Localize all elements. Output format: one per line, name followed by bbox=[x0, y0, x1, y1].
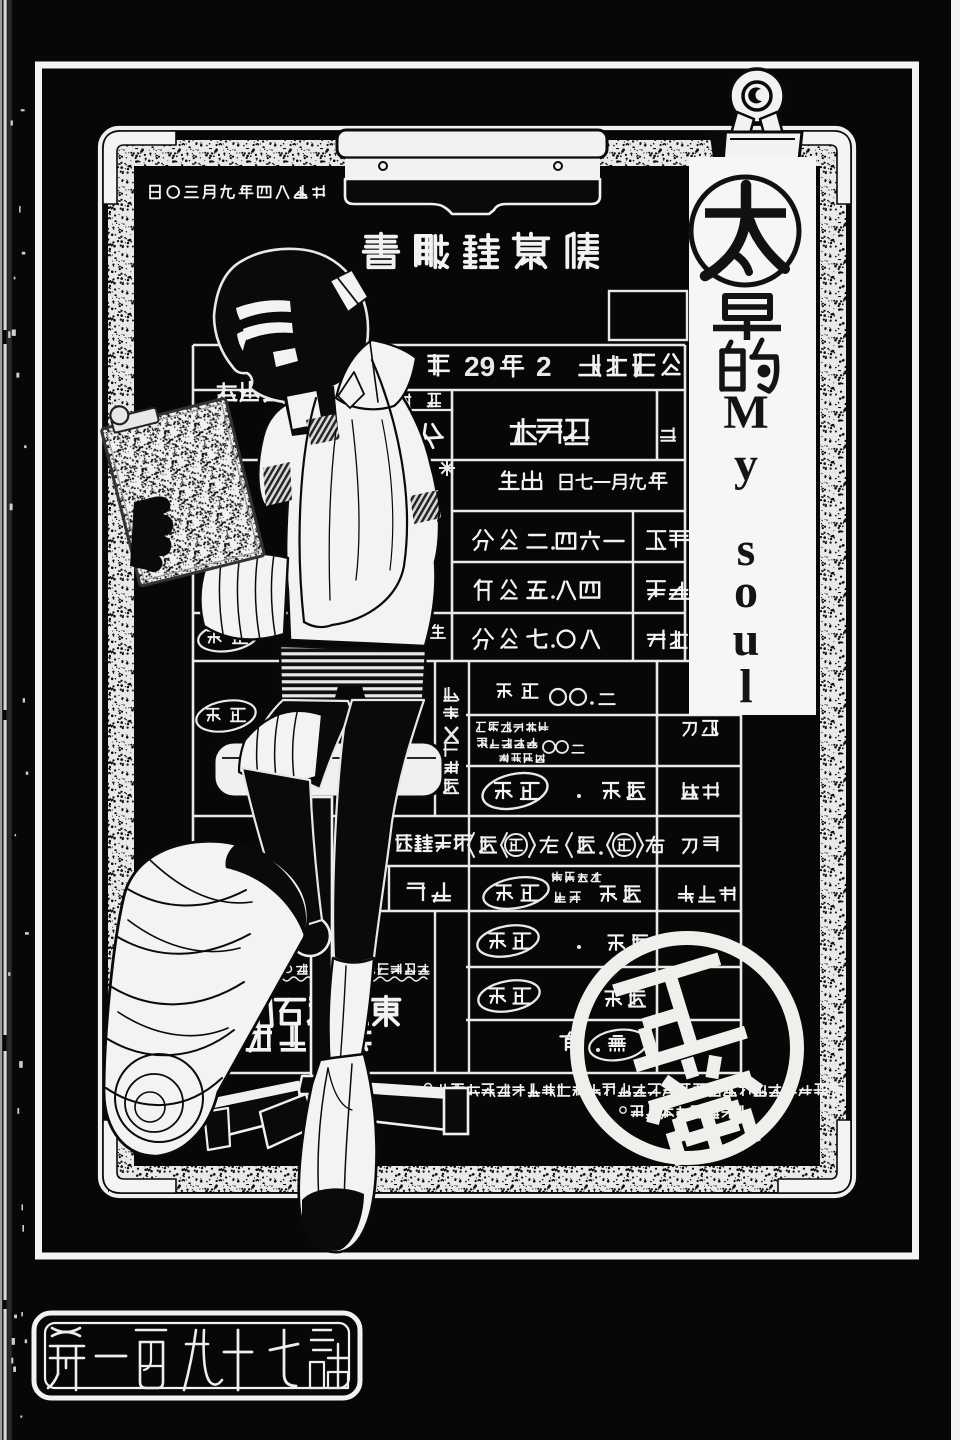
svg-text:y: y bbox=[734, 438, 758, 491]
svg-text:u: u bbox=[733, 613, 760, 666]
svg-text:M: M bbox=[723, 386, 768, 439]
svg-text:o: o bbox=[734, 565, 758, 618]
svg-text:l: l bbox=[739, 660, 752, 713]
svg-text:2: 2 bbox=[536, 351, 552, 382]
svg-text:29: 29 bbox=[464, 351, 495, 382]
